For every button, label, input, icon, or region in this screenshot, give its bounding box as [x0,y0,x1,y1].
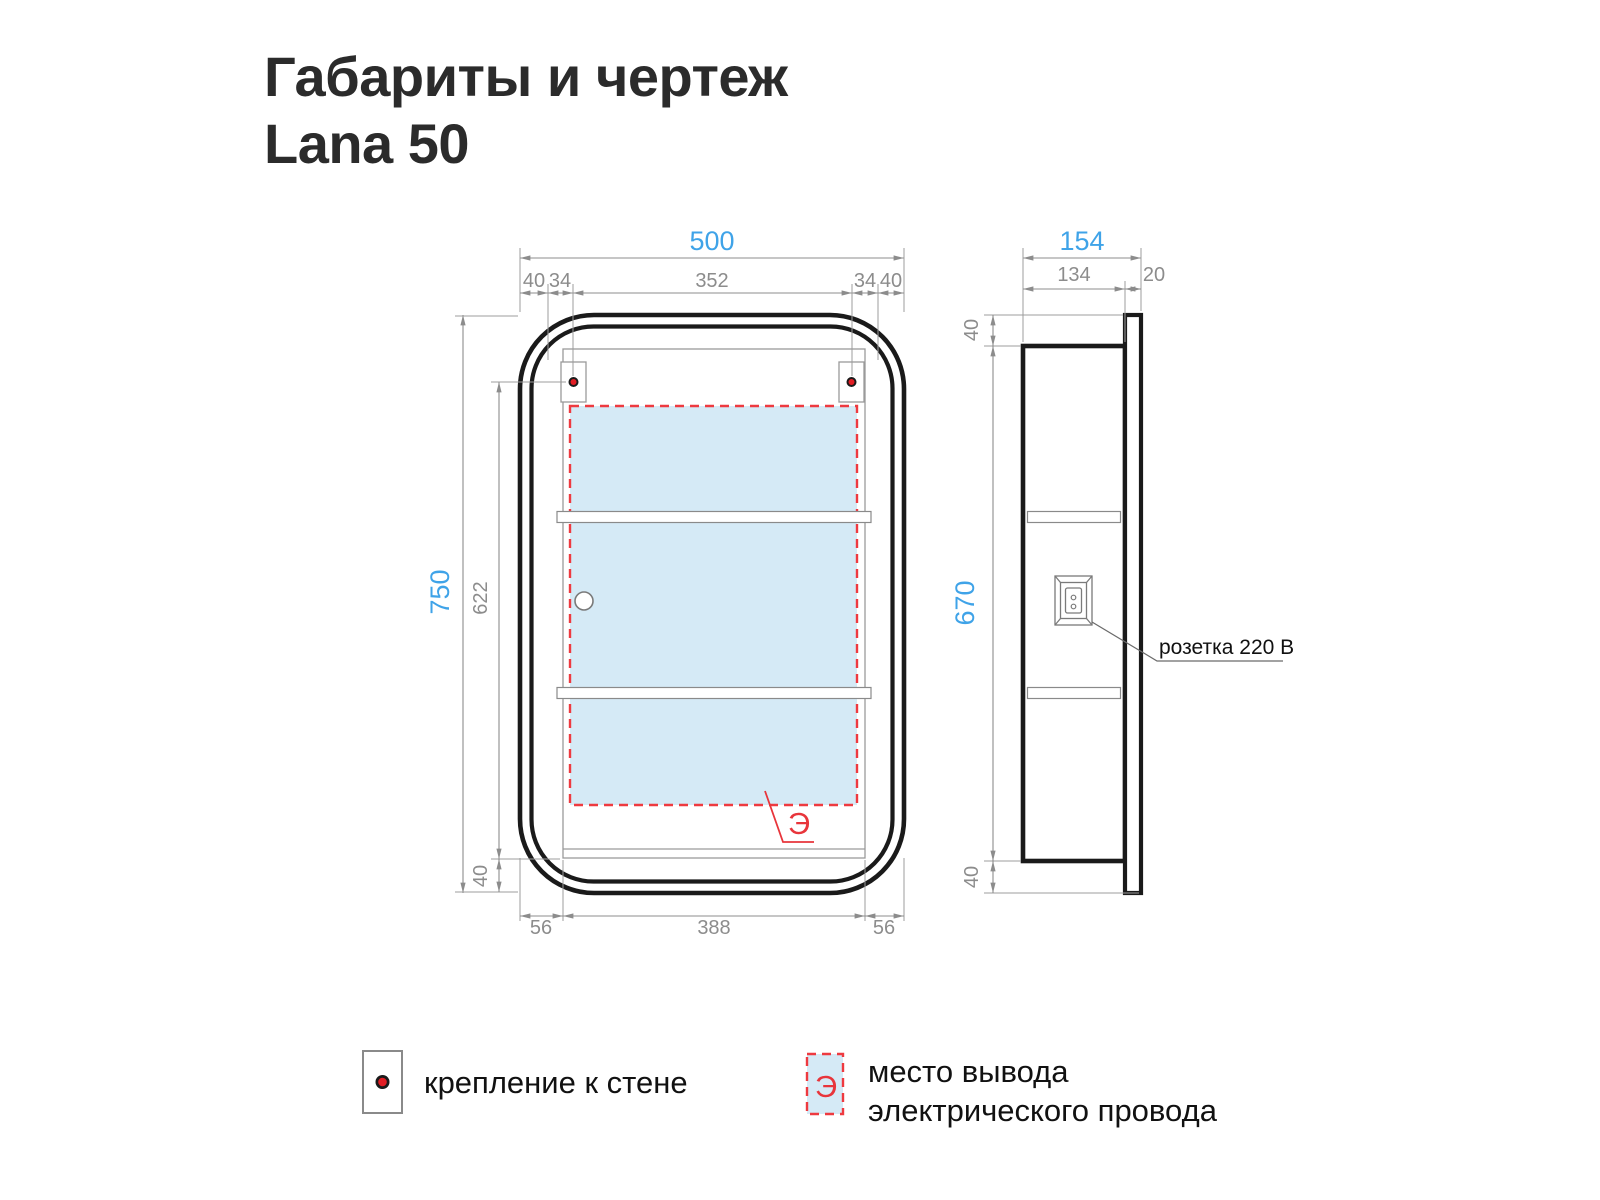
side-shelf-top [1028,512,1121,523]
socket-label: розетка 220 В [1159,636,1294,659]
mount-dot-left [571,379,577,385]
dim-side-body-depth: 134 [1057,264,1090,286]
mount-dot-right [849,379,855,385]
knob-hole [575,592,593,610]
legend-electric-label-line1: место вывода [868,1054,1069,1089]
electric-marker-symbol: Э [788,806,810,841]
legend-mount-label: крепление к стене [424,1065,688,1100]
dim-front-top-seg5: 40 [880,270,902,292]
side-view: розетка 220 В [1023,315,1294,893]
technical-drawing: Габариты и чертеж Lana 50 Э 500 [0,0,1600,1200]
side-shelf-bottom [1028,688,1121,699]
dim-front-bottom-seg2: 388 [697,917,730,939]
dim-front-inner-height: 622 [470,581,492,614]
dim-front-bottom-seg1: 56 [530,917,552,939]
front-view: Э [520,315,904,893]
dim-front-bottom-gap: 40 [470,865,492,887]
dim-front-top-seg1: 40 [523,270,545,292]
dim-front-height-total: 750 [425,569,455,614]
legend-mount-item: крепление к стене [363,1051,688,1113]
shelf-bottom [557,688,871,699]
socket-220v [1055,576,1092,625]
shelf-top [557,512,871,523]
mount-legend-dot [378,1078,387,1087]
dim-front-top-seg2: 34 [549,270,571,292]
legend: крепление к стене Э место вывода электри… [363,1051,1218,1128]
page-title-line1: Габариты и чертеж [264,45,789,108]
dim-side-bottom-gap: 40 [961,866,983,888]
dim-front-width-total: 500 [689,226,734,256]
dim-side-body-height: 670 [950,580,980,625]
legend-electric-item: Э место вывода электрического провода [807,1054,1218,1128]
legend-electric-symbol: Э [815,1069,837,1104]
dim-front-bottom-seg3: 56 [873,917,895,939]
page: Габариты и чертеж Lana 50 Э 500 [0,0,1600,1200]
electric-zone [570,406,857,805]
dim-side-door-depth: 20 [1143,264,1165,286]
dim-side-width-total: 154 [1059,226,1104,256]
dim-front-top-seg3: 352 [695,270,728,292]
dim-front-top-seg4: 34 [854,270,876,292]
dim-side-top-gap: 40 [961,319,983,341]
page-title-line2: Lana 50 [264,112,469,175]
side-mirror-door [1125,315,1141,893]
legend-electric-label-line2: электрического провода [868,1093,1218,1128]
